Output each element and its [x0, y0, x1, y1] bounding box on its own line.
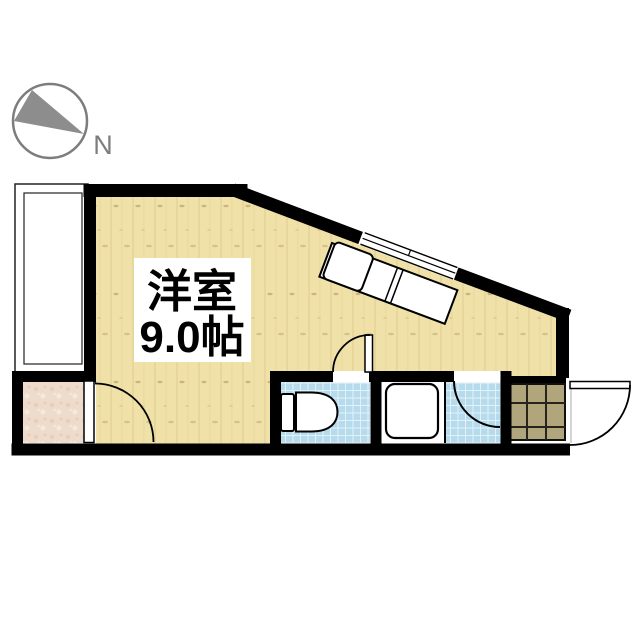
entrance-door-leaf: [570, 382, 630, 389]
storage-door-leaf: [84, 381, 94, 443]
entrance-door-arc: [570, 385, 630, 445]
room-label-box: 洋室 9.0帖: [134, 258, 251, 362]
floor-plan: N: [0, 0, 640, 640]
toilet-door-opening: [333, 371, 369, 383]
room-size-label: 9.0帖: [139, 313, 244, 362]
toilet: [281, 393, 338, 432]
north-label: N: [93, 130, 113, 160]
toilet-tank: [281, 394, 294, 431]
floor-plan-canvas: N: [0, 0, 640, 640]
balcony-inner: [24, 193, 82, 364]
entrance-door: [570, 382, 630, 446]
room-name-label: 洋室: [147, 266, 237, 317]
balcony: [15, 184, 88, 374]
compass: N: [13, 84, 113, 160]
entrance-tiles: [508, 384, 565, 440]
washroom-door-opening: [454, 371, 500, 383]
compass-needle-icon: [14, 90, 84, 134]
shower-pan: [386, 384, 438, 438]
toilet-bowl: [296, 393, 338, 432]
toilet-door-leaf: [365, 335, 373, 372]
storage-room-floor: [21, 381, 84, 443]
